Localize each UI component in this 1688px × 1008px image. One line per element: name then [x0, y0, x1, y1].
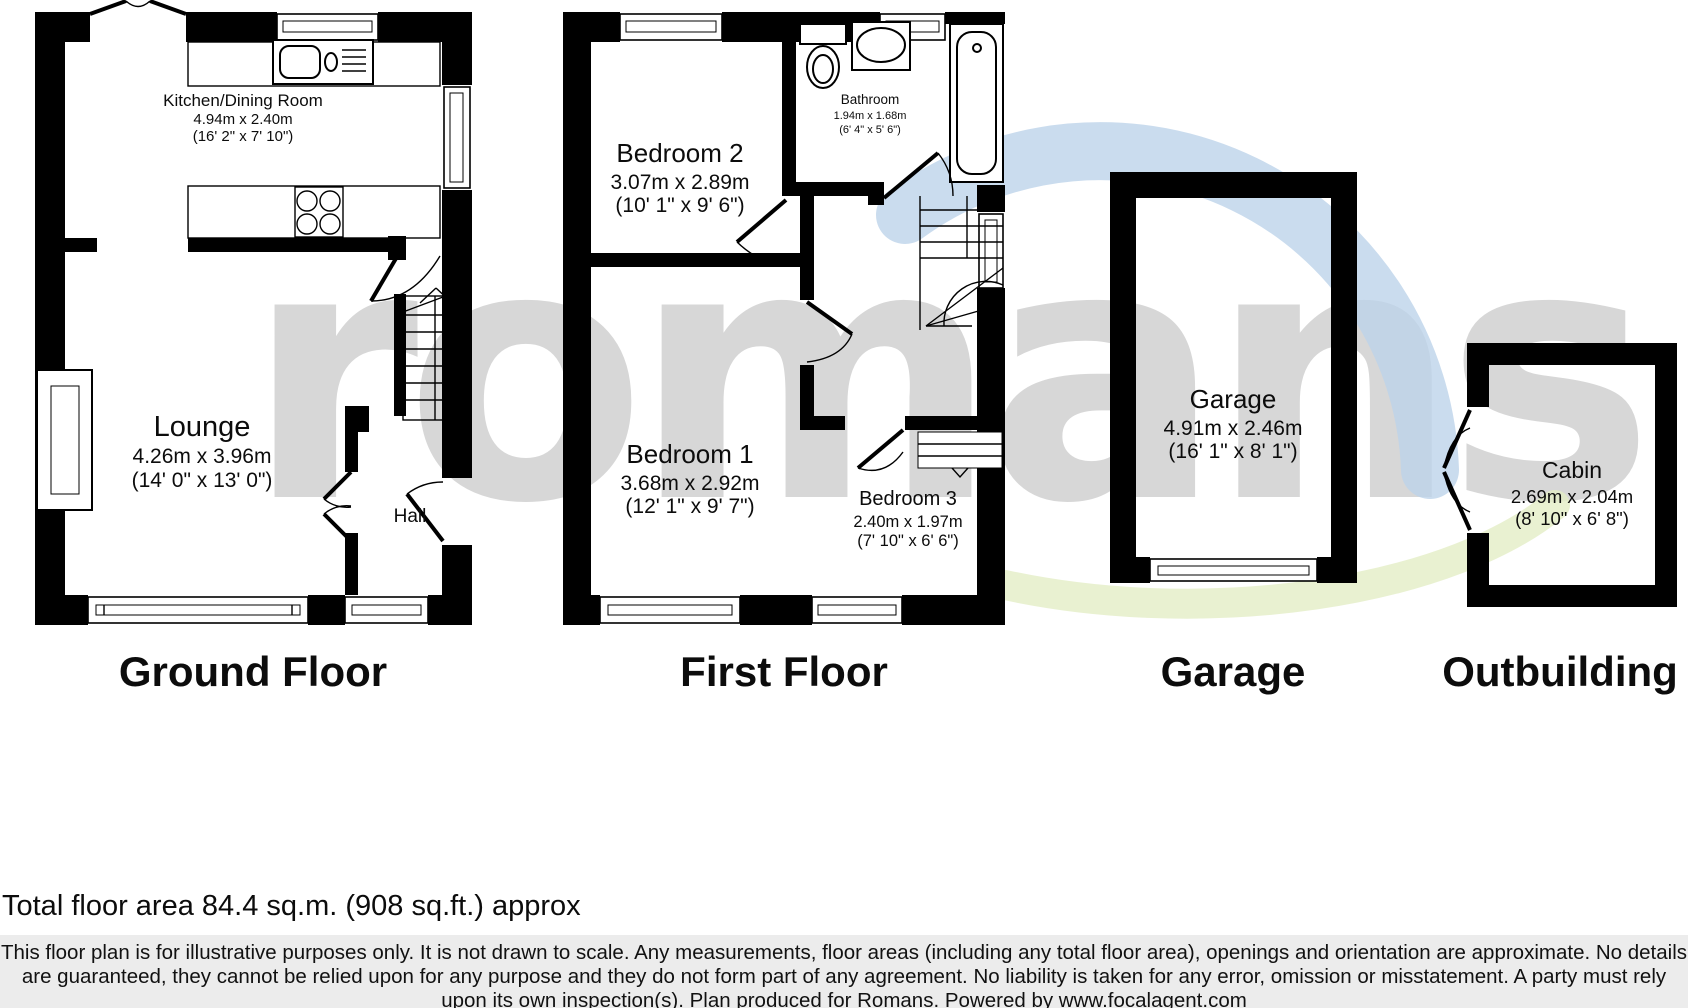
kitchen-sink: [273, 40, 373, 84]
cabin-label: Cabin 2.69m x 2.04m (8' 10" x 6' 8"): [1511, 457, 1633, 529]
lounge-label: Lounge 4.26m x 3.96m (14' 0" x 13' 0"): [132, 411, 273, 492]
first-floor-plan: Bedroom 2 3.07m x 2.89m (10' 1" x 9' 6")…: [563, 12, 1005, 625]
bedroom2-metric: 3.07m x 2.89m: [611, 171, 750, 194]
garage-walls: [1110, 172, 1357, 583]
bedroom1-name: Bedroom 1: [626, 439, 753, 469]
bathroom-name: Bathroom: [841, 92, 900, 107]
total-floor-area: Total floor area 84.4 sq.m. (908 sq.ft.)…: [2, 890, 581, 923]
cabin-imperial: (8' 10" x 6' 8"): [1515, 508, 1629, 529]
kitchen-side-window: [444, 87, 470, 188]
lounge-hall-doors: [324, 472, 351, 541]
toilet: [800, 24, 846, 88]
lounge-imperial: (14' 0" x 13' 0"): [132, 469, 273, 492]
chimney-breast: [37, 370, 92, 510]
bedroom1-metric: 3.68m x 2.92m: [621, 472, 760, 495]
bedroom2-label: Bedroom 2 3.07m x 2.89m (10' 1" x 9' 6"): [611, 138, 750, 217]
lounge-metric: 4.26m x 3.96m: [133, 445, 272, 468]
bedroom3-metric: 2.40m x 1.97m: [853, 513, 962, 531]
garage-metric: 4.91m x 2.46m: [1164, 417, 1303, 440]
ground-floor-plan: Kitchen/Dining Room 4.94m x 2.40m (16' 2…: [35, 1, 472, 625]
cabin-doors: [1444, 410, 1470, 530]
cabin-metric: 2.69m x 2.04m: [1511, 486, 1633, 507]
kitchen-label: Kitchen/Dining Room 4.94m x 2.40m (16' 2…: [163, 91, 323, 145]
lounge-window: [88, 597, 308, 623]
french-doors: [90, 1, 186, 14]
bathroom-door: [884, 153, 953, 198]
bedroom3-window: [812, 597, 902, 623]
lounge-name: Lounge: [154, 411, 251, 443]
garage-plan: Garage 4.91m x 2.46m (16' 1" x 8' 1"): [1110, 172, 1357, 583]
bedroom3-name: Bedroom 3: [859, 488, 957, 510]
hob: [295, 187, 343, 237]
garage-imperial: (16' 1" x 8' 1"): [1168, 440, 1297, 463]
disclaimer-text: This floor plan is for illustrative purp…: [0, 935, 1688, 1008]
garage-name: Garage: [1190, 384, 1277, 414]
bedroom1-door: [807, 302, 852, 362]
bedroom2-name: Bedroom 2: [616, 138, 743, 168]
bedroom1-imperial: (12' 1" x 9' 7"): [625, 495, 754, 518]
bathtub: [950, 24, 1003, 182]
bedroom2-imperial: (10' 1" x 9' 6"): [615, 194, 744, 217]
bedroom3-label: Bedroom 3 2.40m x 1.97m (7' 10" x 6' 6"): [853, 488, 962, 550]
floorplan-page: romans: [0, 0, 1688, 1008]
kitchen-name: Kitchen/Dining Room: [163, 91, 323, 110]
garage-caption: Garage: [1161, 648, 1306, 696]
wash-basin: [852, 22, 910, 70]
bedroom1-label: Bedroom 1 3.68m x 2.92m (12' 1" x 9' 7"): [621, 439, 760, 518]
bathroom-label: Bathroom 1.94m x 1.68m (6' 4" x 5' 6"): [834, 92, 907, 136]
kitchen-imperial: (16' 2" x 7' 10"): [193, 128, 294, 145]
bathroom-metric: 1.94m x 1.68m: [834, 110, 907, 122]
outbuilding-plan: Cabin 2.69m x 2.04m (8' 10" x 6' 8"): [1444, 343, 1677, 607]
bedroom1-window: [600, 597, 740, 623]
bedroom2-window: [620, 14, 722, 40]
outbuilding-caption: Outbuilding: [1442, 648, 1678, 696]
cabin-name: Cabin: [1542, 457, 1602, 483]
first-floor-caption: First Floor: [680, 648, 888, 696]
bathroom-imperial: (6' 4" x 5' 6"): [839, 124, 901, 136]
bedroom3-door: [858, 430, 903, 470]
garage-label: Garage 4.91m x 2.46m (16' 1" x 8' 1"): [1164, 384, 1303, 463]
garage-door-window: [1150, 559, 1317, 581]
hall-label: Hall: [394, 506, 427, 527]
floorplan-drawing: Kitchen/Dining Room 4.94m x 2.40m (16' 2…: [0, 0, 1688, 1008]
kitchen-top-window: [277, 14, 378, 40]
ground-floor-caption: Ground Floor: [119, 648, 387, 696]
bedroom3-imperial: (7' 10" x 6' 6"): [857, 532, 958, 550]
hall-window: [345, 597, 428, 623]
kitchen-metric: 4.94m x 2.40m: [193, 111, 292, 128]
